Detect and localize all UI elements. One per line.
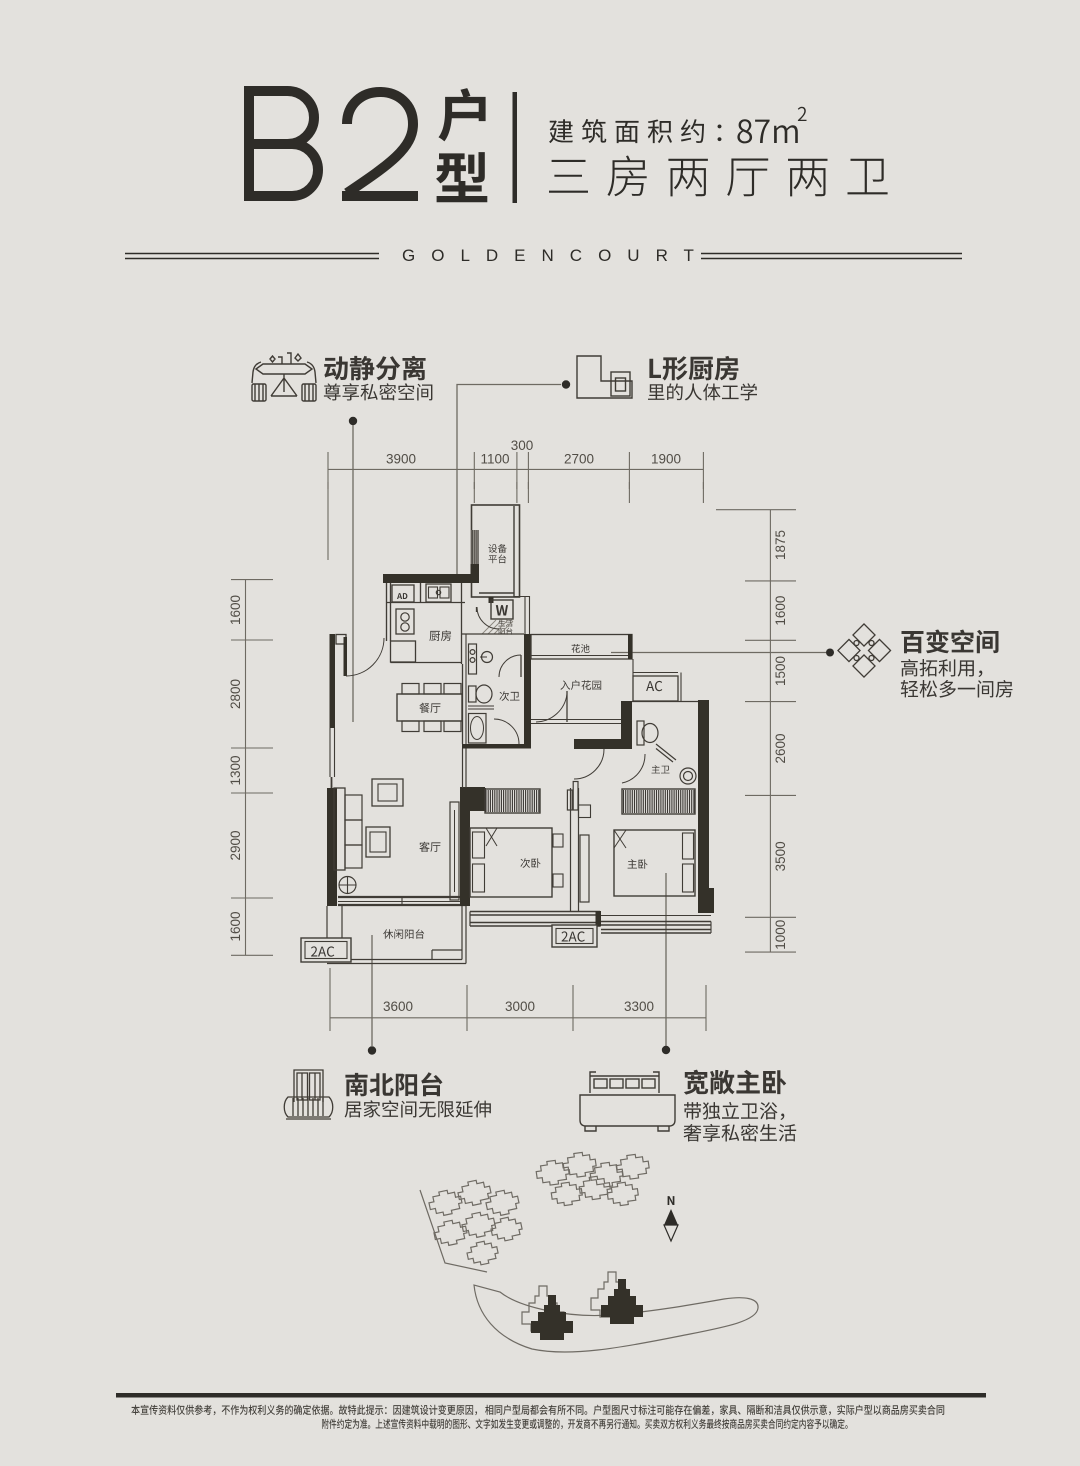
svg-text:3300: 3300 <box>624 999 654 1014</box>
svg-text:2600: 2600 <box>773 733 788 763</box>
svg-text:300: 300 <box>511 438 534 453</box>
svg-text:1600: 1600 <box>773 596 788 626</box>
svg-text:2900: 2900 <box>228 830 243 860</box>
svg-text:3500: 3500 <box>773 841 788 871</box>
svg-text:3000: 3000 <box>505 999 535 1014</box>
svg-text:1600: 1600 <box>228 911 243 941</box>
svg-text:3900: 3900 <box>386 452 416 467</box>
svg-text:3600: 3600 <box>383 999 413 1014</box>
svg-text:1500: 1500 <box>773 656 788 686</box>
svg-text:2800: 2800 <box>228 679 243 709</box>
svg-text:1875: 1875 <box>773 530 788 560</box>
svg-text:1900: 1900 <box>651 452 681 467</box>
svg-text:2700: 2700 <box>564 452 594 467</box>
svg-text:1300: 1300 <box>228 755 243 785</box>
svg-text:GOLDENCOURT: GOLDENCOURT <box>402 246 710 265</box>
svg-text:1600: 1600 <box>228 595 243 625</box>
svg-text:1100: 1100 <box>480 452 509 467</box>
svg-text:1000: 1000 <box>773 920 788 950</box>
